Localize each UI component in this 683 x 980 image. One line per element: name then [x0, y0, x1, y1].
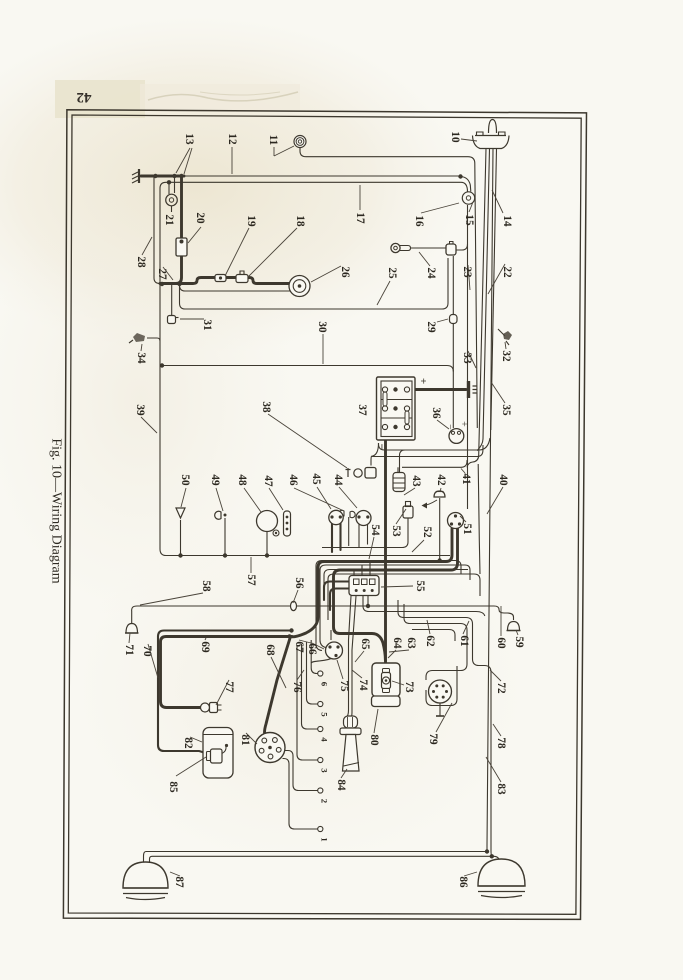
svg-text:61: 61: [458, 635, 470, 647]
svg-text:70: 70: [141, 645, 153, 657]
svg-text:11: 11: [267, 135, 279, 146]
svg-text:30: 30: [316, 321, 328, 333]
svg-text:65: 65: [359, 638, 371, 650]
svg-text:86: 86: [457, 876, 469, 888]
svg-text:50: 50: [179, 474, 191, 486]
svg-text:12: 12: [226, 133, 238, 145]
svg-text:40: 40: [497, 474, 509, 486]
svg-text:42: 42: [435, 474, 447, 486]
svg-text:52: 52: [421, 526, 433, 538]
svg-text:59: 59: [513, 636, 525, 648]
svg-text:24: 24: [425, 267, 437, 279]
svg-text:22: 22: [501, 266, 513, 278]
svg-text:71: 71: [123, 644, 135, 656]
svg-text:26: 26: [339, 266, 351, 278]
svg-text:10: 10: [449, 131, 461, 143]
svg-text:60: 60: [495, 637, 507, 649]
svg-text:72: 72: [495, 682, 507, 694]
svg-text:75: 75: [338, 680, 350, 692]
svg-text:13: 13: [183, 133, 195, 145]
svg-text:23: 23: [461, 266, 473, 278]
svg-text:80: 80: [368, 734, 380, 746]
svg-text:76: 76: [291, 681, 303, 693]
svg-text:81: 81: [239, 734, 251, 746]
svg-text:87: 87: [173, 876, 185, 888]
svg-text:28: 28: [135, 256, 147, 268]
svg-text:85: 85: [167, 781, 179, 793]
svg-text:47: 47: [262, 475, 274, 487]
svg-text:34: 34: [135, 352, 147, 364]
svg-text:16: 16: [413, 215, 425, 227]
svg-text:53: 53: [390, 525, 402, 537]
svg-text:74: 74: [357, 679, 369, 691]
svg-text:43: 43: [410, 475, 422, 487]
svg-text:82: 82: [182, 737, 194, 749]
svg-text:84: 84: [335, 779, 347, 791]
svg-text:69: 69: [199, 641, 211, 653]
svg-text:31: 31: [201, 319, 213, 331]
svg-text:Fig. 10—Wiring Diagram: Fig. 10—Wiring Diagram: [49, 438, 64, 583]
svg-text:2: 2: [320, 799, 330, 804]
svg-text:73: 73: [403, 681, 415, 693]
svg-text:37: 37: [356, 404, 368, 416]
svg-text:41: 41: [460, 473, 472, 485]
svg-text:39: 39: [134, 404, 146, 416]
svg-text:56: 56: [293, 577, 305, 589]
svg-text:3: 3: [320, 768, 330, 773]
svg-text:45: 45: [310, 473, 322, 485]
svg-text:4: 4: [320, 737, 330, 742]
svg-text:42: 42: [77, 89, 92, 105]
svg-text:55: 55: [414, 580, 426, 592]
svg-text:21: 21: [163, 214, 175, 226]
svg-text:14: 14: [501, 215, 513, 227]
svg-text:25: 25: [386, 267, 398, 279]
svg-text:35: 35: [500, 404, 512, 416]
svg-text:49: 49: [209, 474, 221, 486]
svg-text:29: 29: [425, 321, 437, 333]
svg-text:−: −: [444, 424, 455, 430]
svg-text:51: 51: [461, 523, 473, 535]
svg-text:79: 79: [427, 733, 439, 745]
svg-text:19: 19: [245, 215, 257, 227]
svg-text:36: 36: [430, 407, 442, 419]
svg-text:6: 6: [320, 682, 330, 687]
svg-text:78: 78: [495, 737, 507, 749]
svg-text:46: 46: [287, 474, 299, 486]
svg-text:48: 48: [236, 474, 248, 486]
svg-text:−: −: [375, 444, 389, 451]
svg-text:54: 54: [369, 524, 381, 536]
svg-text:32: 32: [500, 350, 512, 362]
svg-text:27: 27: [156, 268, 168, 280]
svg-text:62: 62: [424, 635, 436, 647]
svg-text:57: 57: [245, 574, 257, 586]
svg-text:58: 58: [200, 580, 212, 592]
svg-text:+: +: [417, 378, 429, 384]
svg-text:5: 5: [320, 712, 330, 717]
svg-text:64: 64: [391, 637, 403, 649]
svg-text:33: 33: [461, 352, 473, 364]
svg-text:38: 38: [260, 401, 272, 413]
svg-text:20: 20: [194, 212, 206, 224]
svg-text:15: 15: [463, 214, 475, 226]
svg-text:17: 17: [354, 212, 366, 224]
svg-text:+: +: [458, 421, 469, 427]
svg-text:67: 67: [293, 641, 305, 653]
svg-text:68: 68: [264, 644, 276, 656]
svg-text:77: 77: [223, 681, 235, 693]
svg-text:18: 18: [294, 215, 306, 227]
svg-text:1: 1: [320, 837, 330, 841]
svg-text:83: 83: [495, 783, 507, 795]
svg-text:66: 66: [306, 643, 318, 655]
svg-text:63: 63: [405, 637, 417, 649]
svg-text:44: 44: [332, 474, 344, 486]
